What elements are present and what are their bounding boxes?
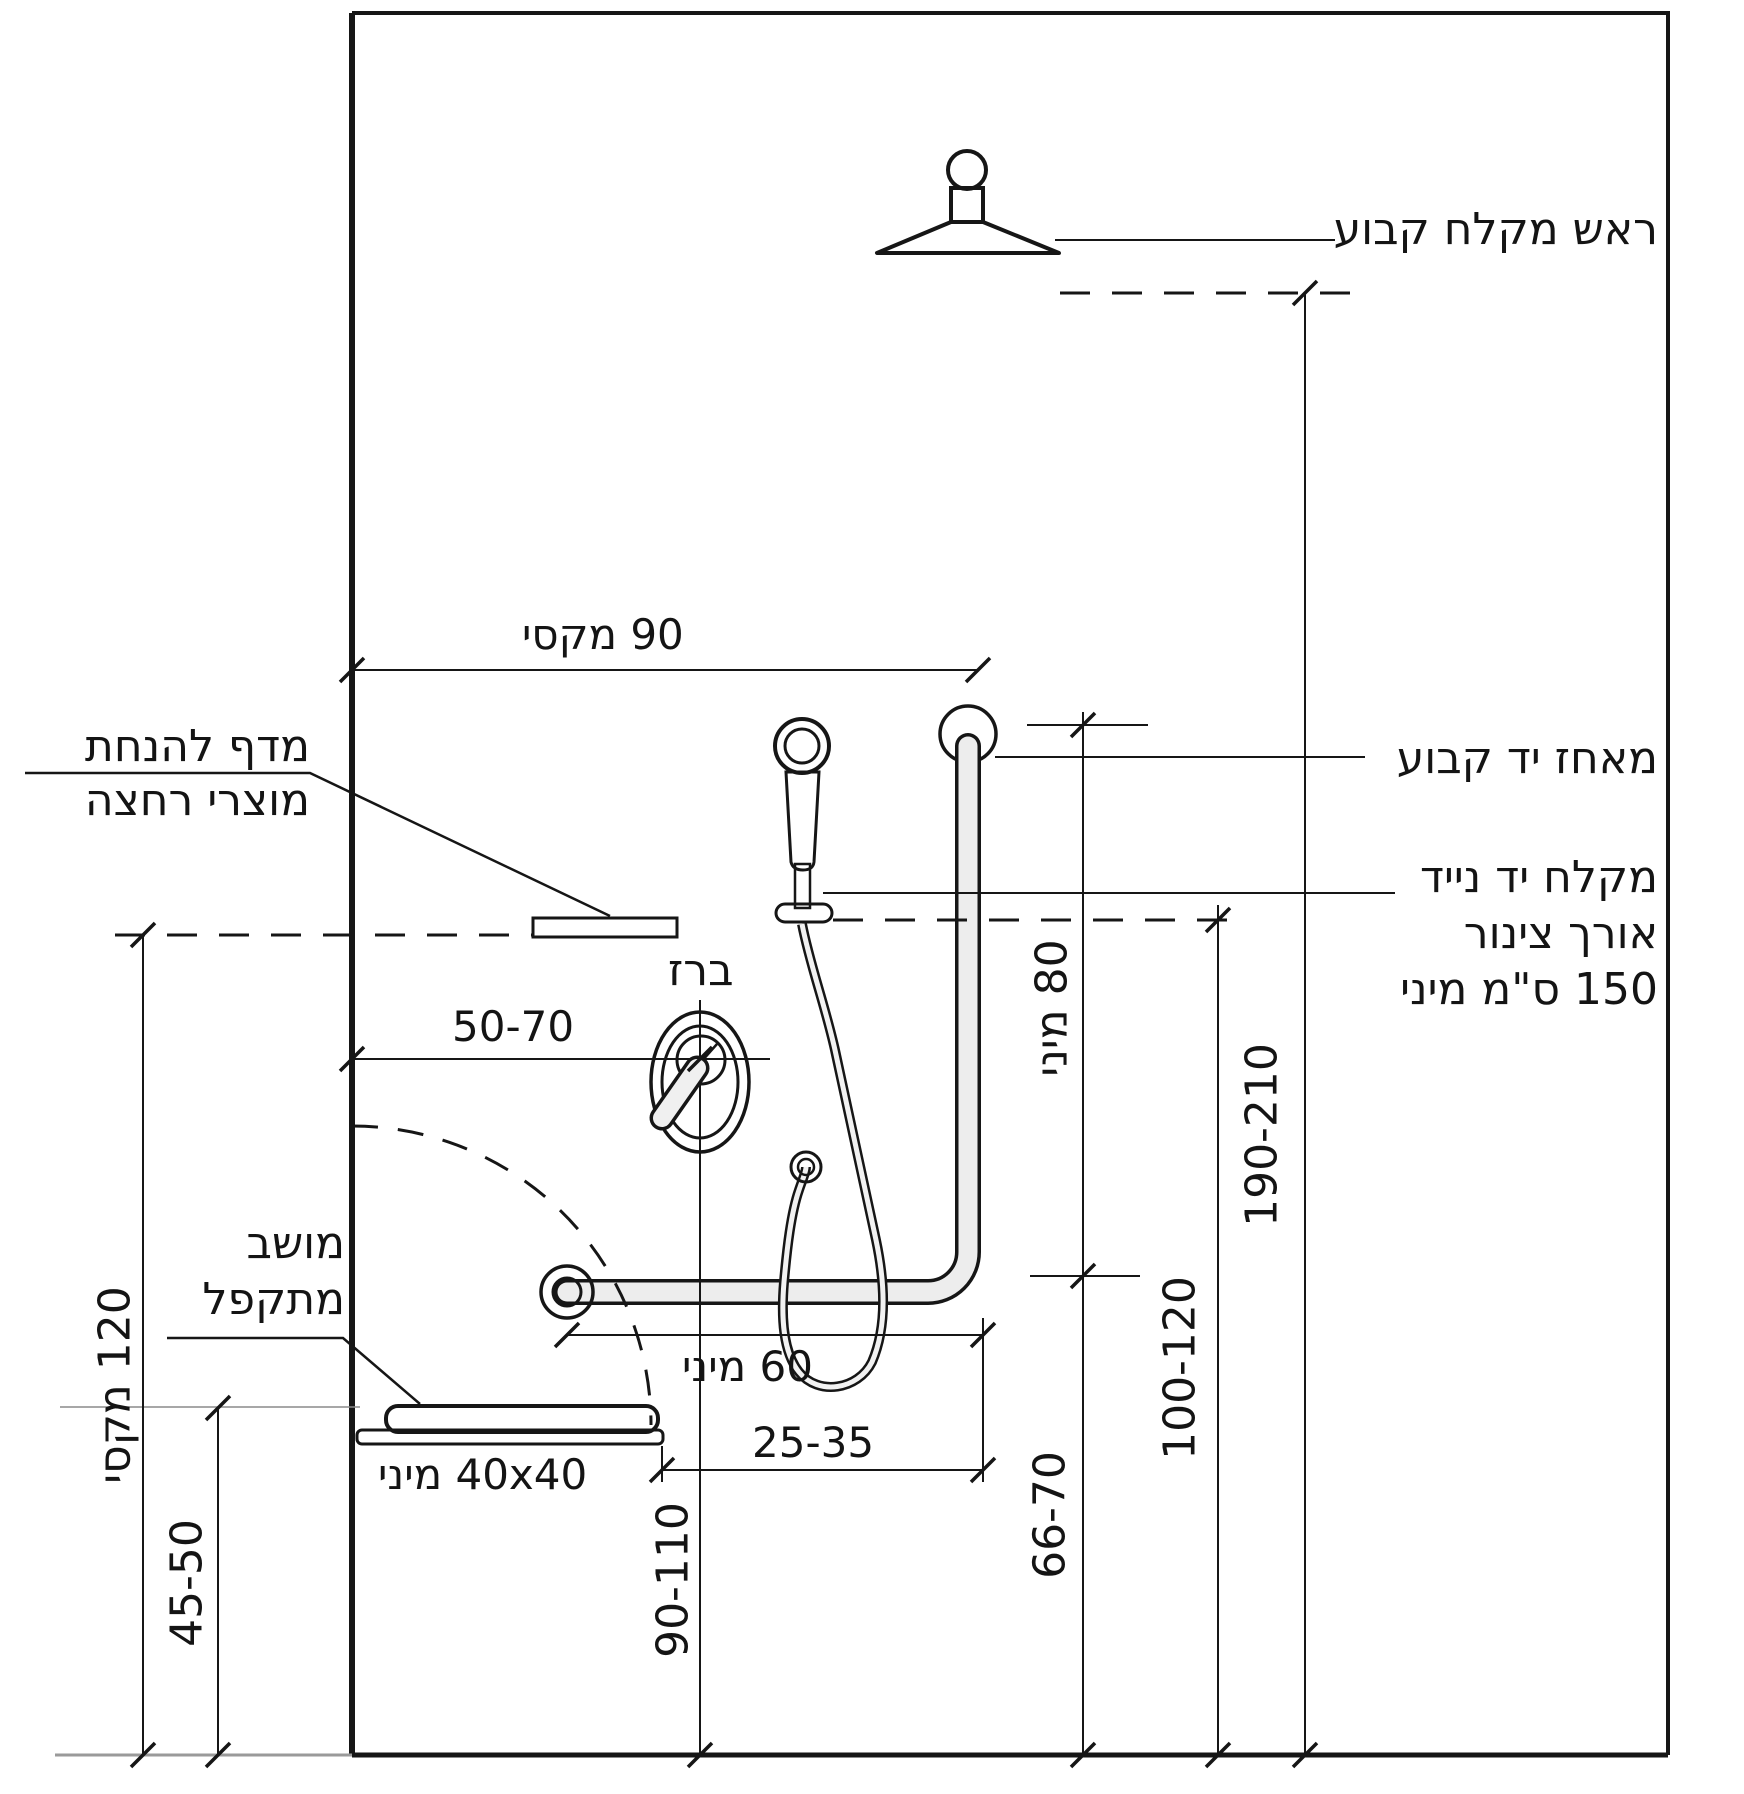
label-seat: מושב מתקפל (160, 1216, 345, 1328)
label-fixed-grab-bar: מאחז יד קבוע (1397, 733, 1658, 786)
dim-faucet-height: 90-110 (648, 1502, 699, 1658)
seat-cushion (386, 1406, 658, 1432)
dim-bar-height: 66-70 (1025, 1451, 1076, 1579)
dim-faucet-offset: 50-70 (452, 1002, 574, 1052)
label-shelf-line1: מדף להנחת (25, 720, 310, 774)
dim-vertical-bar-min: 80 מיני (1027, 939, 1078, 1076)
dimension-ticks (131, 281, 1317, 1767)
label-hand-shower-line2: אורך צינור (1400, 906, 1658, 962)
label-seat-line1: מושב (160, 1216, 345, 1272)
dimension-lines (143, 293, 1305, 1755)
hand-shower-head (775, 719, 829, 773)
label-shelf: מדף להנחת מוצרי רחצה (25, 720, 310, 828)
label-fixed-shower-head: ראש מקלח קבוע (1334, 204, 1658, 257)
shower-accessibility-diagram: ראש מקלח קבוע מאחז יד קבוע מקלח יד נייד … (0, 0, 1744, 1794)
label-hand-shower-line3: 150 ס"מ מיני (1400, 962, 1658, 1018)
label-shelf-line2: מוצרי רחצה (25, 774, 310, 828)
label-faucet: ברז (668, 945, 734, 998)
shower-head-cone (877, 222, 1059, 253)
label-seat-line2: מתקפל (160, 1272, 345, 1328)
dim-hand-shower-height: 100-120 (1155, 1276, 1206, 1460)
dim-seat-to-bar: 25-35 (752, 1418, 874, 1468)
hand-shower-body (786, 772, 819, 870)
label-hand-shower: מקלח יד נייד אורך צינור 150 ס"מ מיני (1400, 850, 1658, 1018)
hand-shower (775, 719, 832, 922)
hand-shower-holder (776, 904, 832, 922)
dim-seat-height: 45-50 (162, 1519, 213, 1647)
fixed-shower-head (877, 151, 1059, 253)
shelf (533, 918, 677, 937)
label-hand-shower-line1: מקלח יד נייד (1400, 850, 1658, 906)
dim-bar-length-min: 60 מיני (682, 1342, 813, 1392)
l-shaped-grab-bar (541, 706, 996, 1318)
shower-head-ball-joint (948, 151, 986, 189)
dim-shelf-height-max: 120 מקסי (90, 1286, 141, 1483)
shower-head-neck (951, 188, 983, 222)
dim-seat-size-min: 40x40 מיני (378, 1450, 587, 1500)
dim-top-width-max: 90 מקסי (522, 610, 684, 660)
dim-head-height: 190-210 (1237, 1043, 1288, 1227)
shower-hose (783, 924, 883, 1387)
leader-seat (167, 1338, 420, 1404)
grab-bar-tube (567, 746, 968, 1292)
seat-swing-arc-dashed (352, 1126, 651, 1425)
grab-bar-outline (567, 746, 968, 1292)
hand-shower-head-inner (785, 729, 819, 763)
